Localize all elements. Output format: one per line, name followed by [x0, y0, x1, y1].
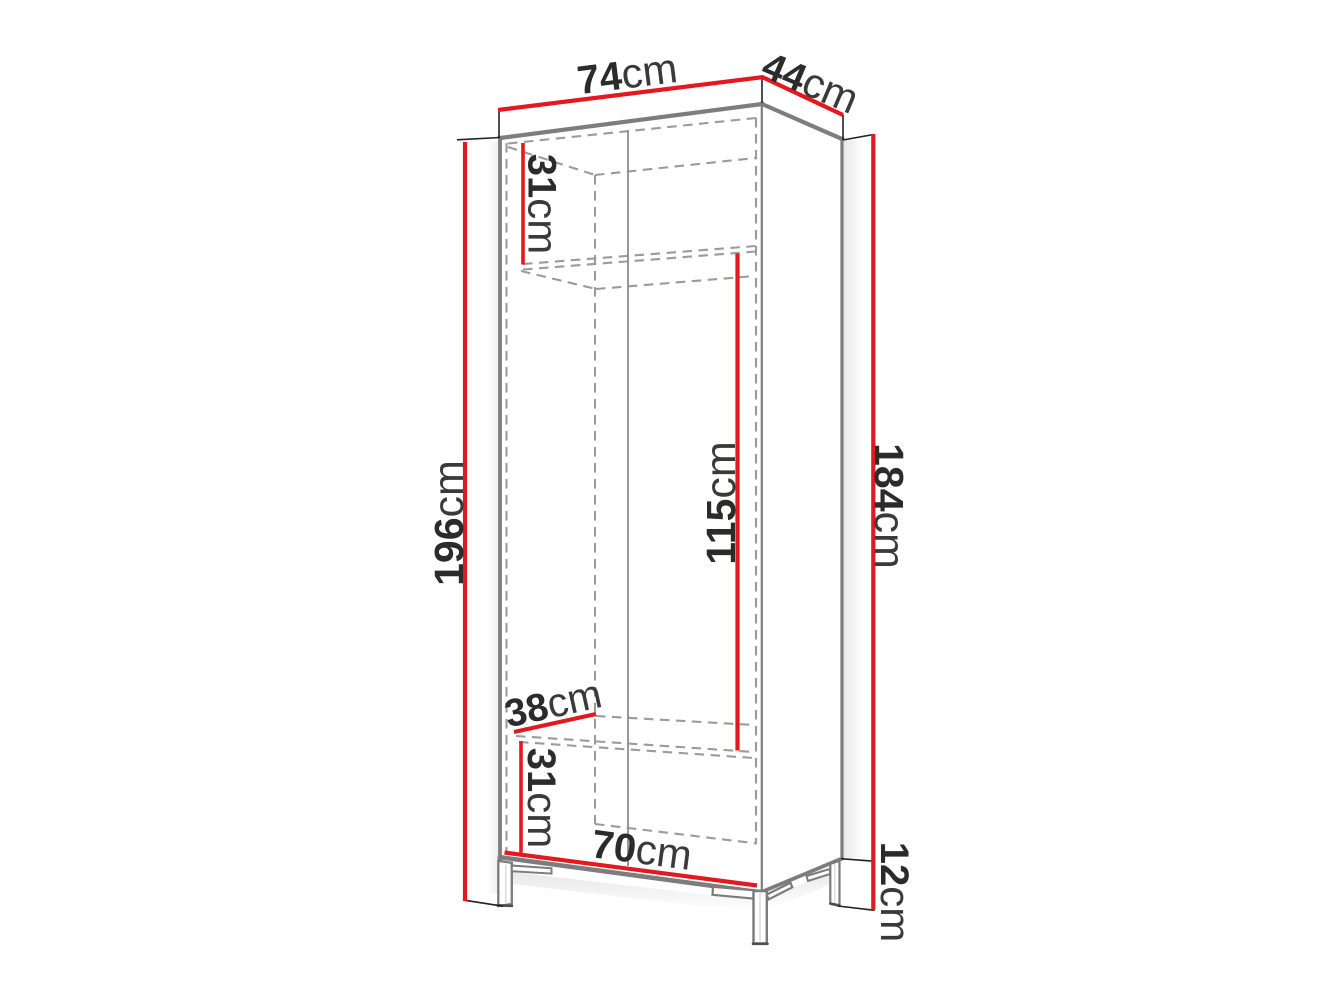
svg-text:31cm: 31cm: [520, 154, 567, 255]
svg-text:31cm: 31cm: [519, 748, 566, 849]
svg-text:115cm: 115cm: [697, 441, 745, 564]
svg-text:196cm: 196cm: [425, 460, 473, 586]
svg-text:12cm: 12cm: [872, 842, 919, 943]
svg-text:74cm: 74cm: [574, 44, 680, 103]
svg-text:184cm: 184cm: [865, 443, 913, 569]
svg-text:38cm: 38cm: [500, 670, 606, 736]
